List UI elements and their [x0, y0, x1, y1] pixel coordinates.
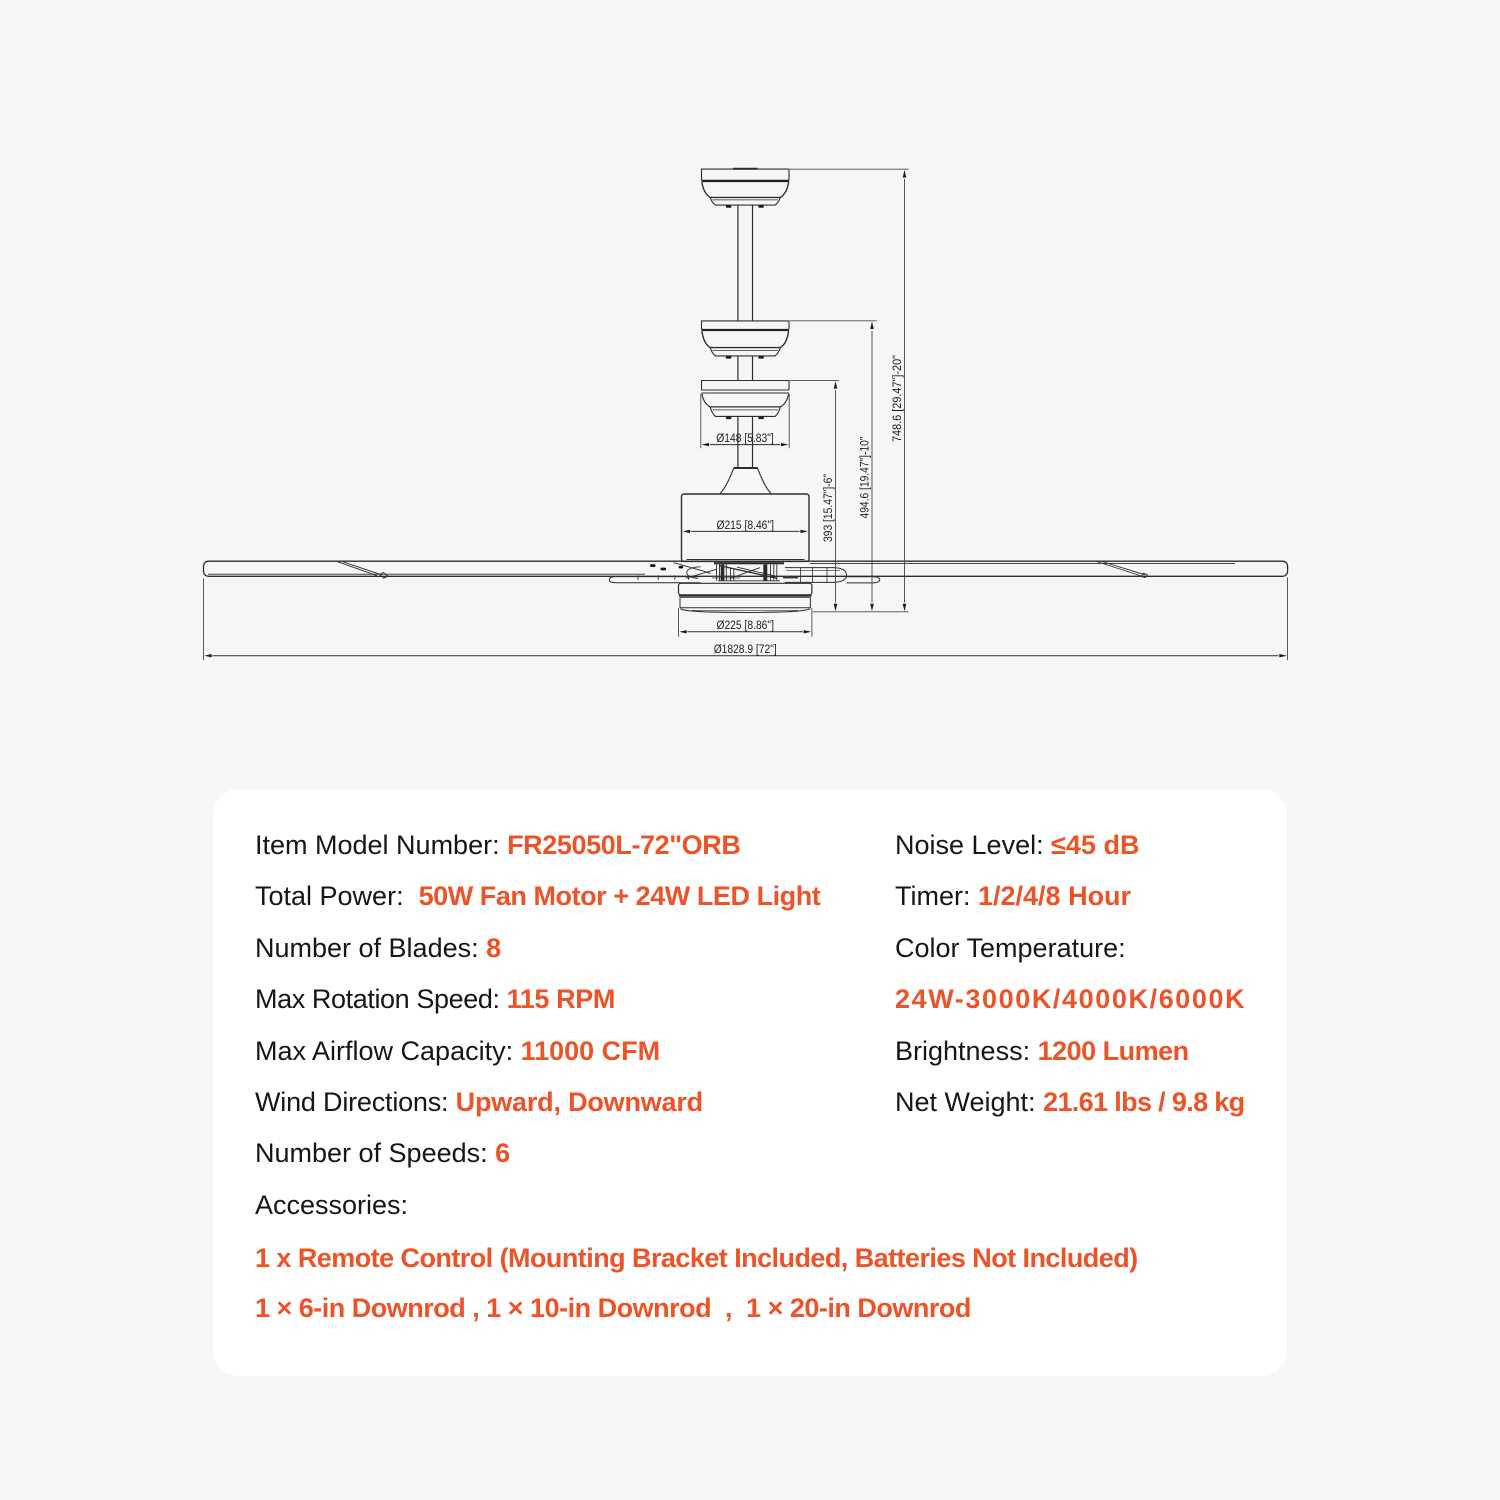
- svg-text:393 [15.47"]-6": 393 [15.47"]-6": [823, 474, 835, 542]
- svg-text:494.6 [19.47"]-10": 494.6 [19.47"]-10": [859, 437, 871, 519]
- svg-text:748.6 [29.47"]-20": 748.6 [29.47"]-20": [892, 355, 904, 442]
- svg-text:Ø215 [8.46"]: Ø215 [8.46"]: [716, 520, 774, 532]
- svg-text:Ø225 [8.86"]: Ø225 [8.86"]: [716, 620, 774, 632]
- svg-text:Ø148 [5.83"]: Ø148 [5.83"]: [716, 433, 774, 445]
- svg-text:Ø1828.9 [72"]: Ø1828.9 [72"]: [714, 644, 777, 656]
